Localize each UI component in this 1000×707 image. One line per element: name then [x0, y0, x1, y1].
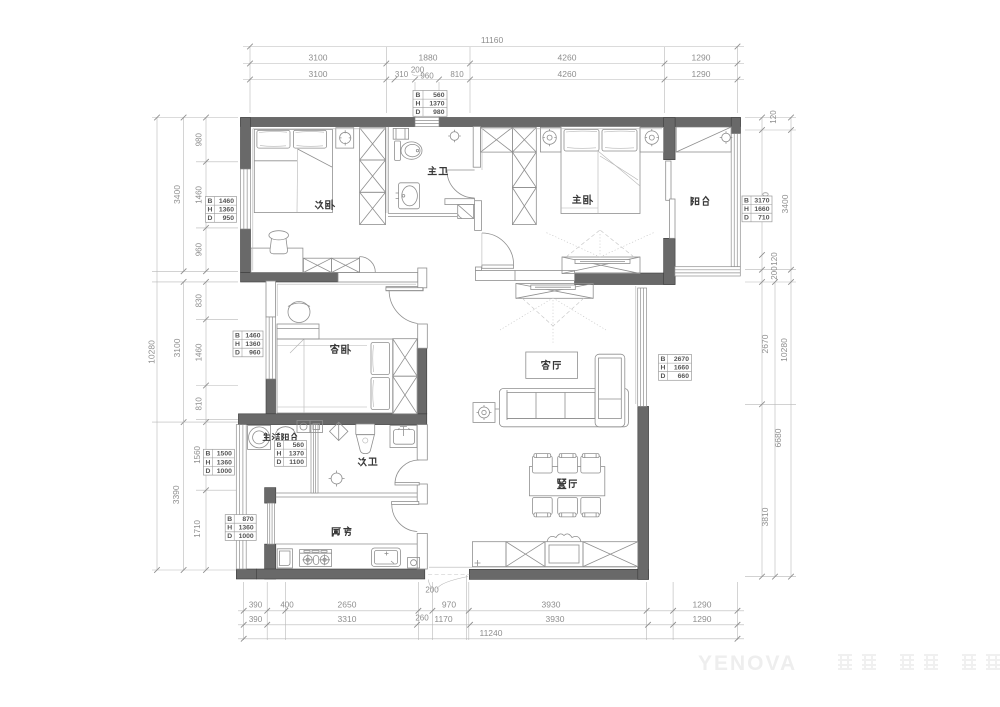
svg-text:B: B [208, 198, 213, 205]
svg-text:1360: 1360 [219, 207, 234, 214]
svg-text:950: 950 [223, 215, 235, 222]
svg-text:B: B [661, 356, 666, 363]
svg-text:1100: 1100 [289, 459, 304, 466]
svg-text:D: D [208, 215, 213, 222]
svg-text:1290: 1290 [692, 69, 711, 79]
svg-text:4260: 4260 [558, 53, 577, 63]
svg-text:1290: 1290 [693, 600, 712, 610]
svg-text:660: 660 [678, 373, 690, 380]
svg-text:560: 560 [433, 92, 445, 99]
svg-text:D: D [416, 109, 421, 116]
svg-text:H: H [205, 459, 210, 466]
svg-text:H: H [208, 207, 213, 214]
svg-text:810: 810 [450, 70, 464, 79]
svg-text:2670: 2670 [674, 356, 689, 363]
svg-text:D: D [744, 215, 749, 222]
svg-text:H: H [416, 101, 421, 108]
svg-text:1000: 1000 [239, 533, 254, 540]
svg-text:4260: 4260 [558, 69, 577, 79]
svg-text:1710: 1710 [193, 519, 202, 537]
svg-text:980: 980 [195, 132, 204, 146]
svg-text:3310: 3310 [338, 614, 357, 624]
svg-text:560: 560 [293, 442, 305, 449]
svg-text:400: 400 [280, 601, 294, 610]
svg-text:810: 810 [195, 397, 204, 411]
svg-text:390: 390 [249, 601, 263, 610]
svg-text:1000: 1000 [217, 468, 232, 475]
svg-text:1290: 1290 [693, 614, 712, 624]
svg-text:3390: 3390 [171, 485, 181, 504]
svg-text:1560: 1560 [193, 445, 202, 463]
svg-text:D: D [227, 533, 232, 540]
svg-text:H: H [277, 451, 282, 458]
svg-text:390: 390 [249, 615, 263, 624]
svg-text:1170: 1170 [434, 614, 453, 624]
svg-text:H: H [744, 206, 749, 213]
svg-text:1880: 1880 [419, 53, 438, 63]
svg-text:10280: 10280 [779, 338, 789, 362]
svg-text:YENOVA: YENOVA [698, 652, 797, 675]
svg-text:830: 830 [195, 293, 204, 307]
svg-text:B: B [227, 516, 232, 523]
svg-text:310: 310 [395, 70, 409, 79]
svg-text:B: B [205, 451, 210, 458]
svg-text:3170: 3170 [754, 197, 769, 204]
svg-text:3100: 3100 [172, 338, 182, 357]
svg-text:D: D [205, 468, 210, 475]
svg-text:1460: 1460 [219, 198, 234, 205]
svg-text:6680: 6680 [773, 428, 783, 447]
svg-text:B: B [235, 332, 240, 339]
svg-text:2650: 2650 [338, 600, 357, 610]
svg-text:3400: 3400 [172, 185, 182, 204]
svg-text:B: B [744, 197, 749, 204]
svg-text:11160: 11160 [481, 35, 504, 45]
svg-text:D: D [277, 459, 282, 466]
svg-text:3810: 3810 [760, 507, 770, 526]
svg-text:1460: 1460 [195, 343, 204, 361]
svg-text:D: D [661, 373, 666, 380]
svg-text:1370: 1370 [429, 101, 444, 108]
svg-text:1290: 1290 [692, 53, 711, 63]
svg-text:3100: 3100 [309, 69, 328, 79]
svg-text:970: 970 [442, 600, 456, 610]
svg-text:3400: 3400 [780, 194, 790, 213]
svg-text:200: 200 [425, 586, 439, 595]
svg-text:3930: 3930 [542, 600, 561, 610]
svg-text:1360: 1360 [245, 341, 260, 348]
svg-text:1460: 1460 [195, 185, 204, 203]
svg-text:960: 960 [195, 242, 204, 256]
svg-text:10280: 10280 [147, 340, 157, 364]
svg-text:1360: 1360 [239, 525, 254, 532]
svg-text:1360: 1360 [217, 459, 232, 466]
svg-text:960: 960 [249, 350, 261, 357]
svg-text:H: H [661, 365, 666, 372]
svg-text:120: 120 [769, 110, 778, 124]
svg-text:3100: 3100 [309, 53, 328, 63]
svg-text:H: H [235, 341, 240, 348]
svg-text:2670: 2670 [760, 334, 770, 353]
svg-text:D: D [235, 350, 240, 357]
svg-text:1660: 1660 [674, 365, 689, 372]
svg-text:3930: 3930 [546, 614, 565, 624]
svg-text:870: 870 [242, 516, 254, 523]
svg-text:710: 710 [758, 215, 770, 222]
svg-text:200: 200 [770, 266, 779, 280]
svg-text:1660: 1660 [754, 206, 769, 213]
svg-text:B: B [416, 92, 421, 99]
svg-text:260: 260 [415, 614, 429, 623]
svg-text:1370: 1370 [289, 451, 304, 458]
svg-text:120: 120 [770, 252, 779, 266]
svg-text:980: 980 [433, 109, 445, 116]
svg-text:11240: 11240 [479, 628, 502, 638]
svg-text:1500: 1500 [217, 451, 232, 458]
svg-text:B: B [277, 442, 282, 449]
svg-text:1460: 1460 [245, 332, 260, 339]
svg-text:960: 960 [420, 72, 434, 81]
svg-text:H: H [227, 525, 232, 532]
